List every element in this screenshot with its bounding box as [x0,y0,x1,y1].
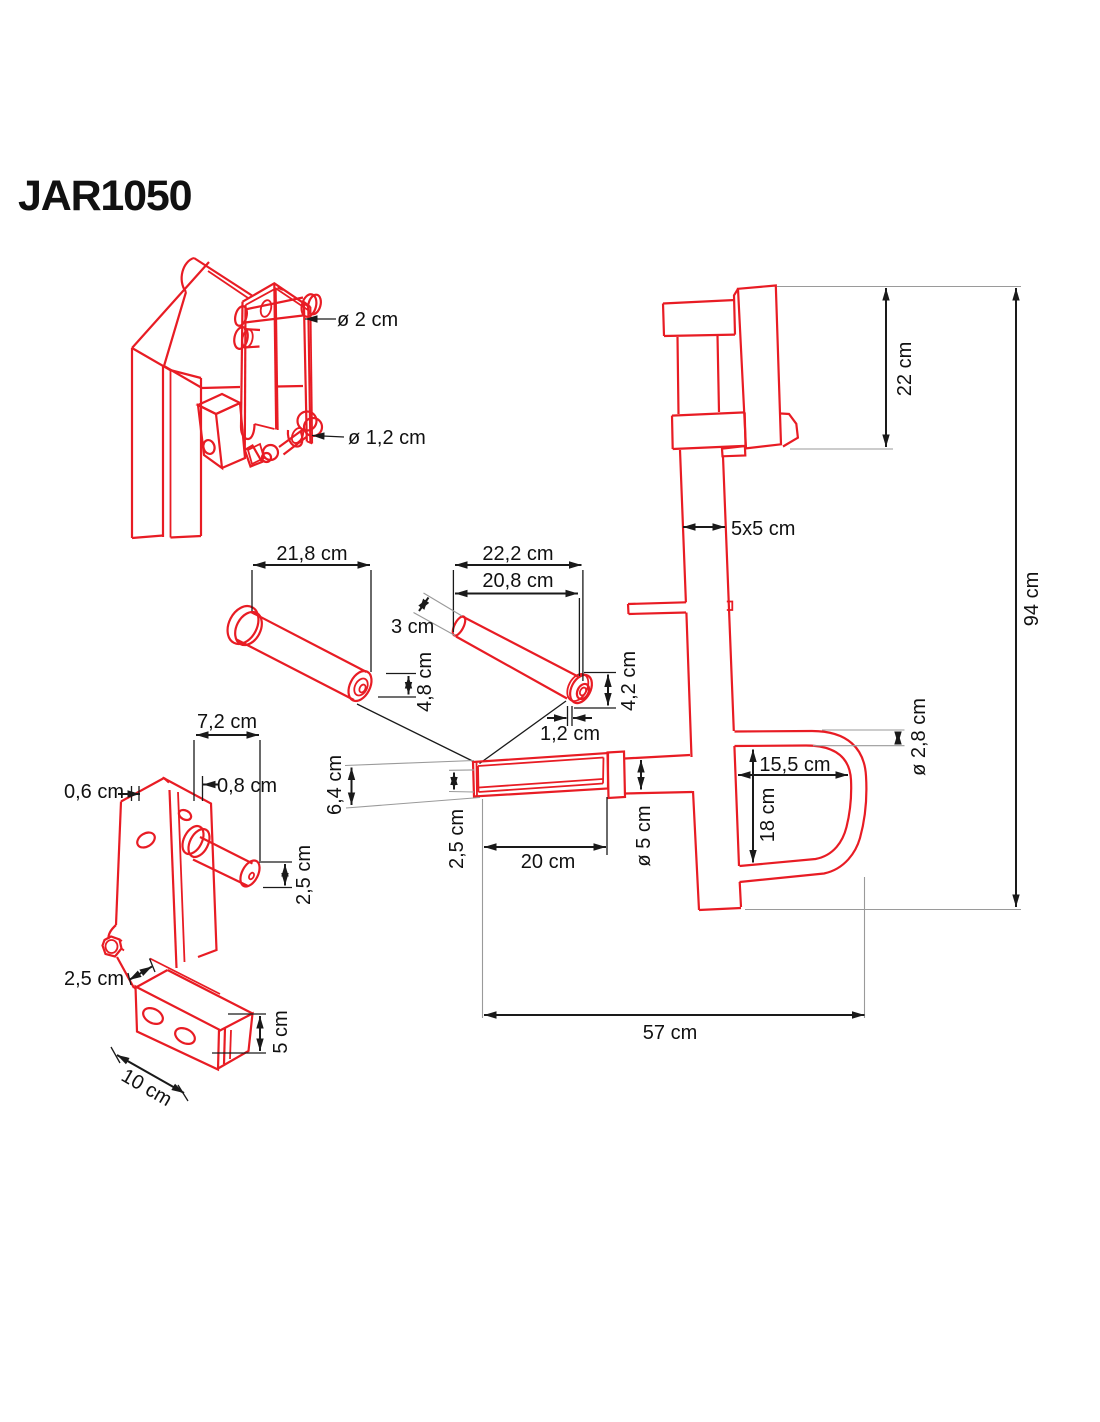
svg-text:18 cm: 18 cm [757,788,779,842]
svg-text:7,2 cm: 7,2 cm [197,711,257,733]
svg-text:21,8 cm: 21,8 cm [276,543,347,565]
svg-text:0,8 cm: 0,8 cm [217,775,277,797]
svg-text:4,8 cm: 4,8 cm [414,652,436,712]
svg-text:22,2 cm: 22,2 cm [482,543,553,565]
svg-text:6,4 cm: 6,4 cm [324,755,346,815]
svg-text:3 cm: 3 cm [391,616,434,638]
svg-text:2,5 cm: 2,5 cm [446,809,468,869]
svg-text:ø 2,8 cm: ø 2,8 cm [908,698,930,776]
svg-text:JAR1050: JAR1050 [18,172,192,220]
svg-text:57 cm: 57 cm [643,1022,697,1044]
svg-text:22 cm: 22 cm [894,342,916,396]
svg-text:5 cm: 5 cm [270,1010,292,1053]
svg-text:1,2 cm: 1,2 cm [540,723,600,745]
svg-text:94 cm: 94 cm [1021,572,1043,626]
svg-text:ø 5 cm: ø 5 cm [633,805,655,866]
svg-text:4,2 cm: 4,2 cm [618,651,640,711]
svg-text:ø 2 cm: ø 2 cm [337,309,398,331]
svg-text:2,5 cm: 2,5 cm [293,845,315,905]
svg-text:0,6 cm: 0,6 cm [64,781,124,803]
svg-text:20 cm: 20 cm [521,851,575,873]
svg-text:15,5 cm: 15,5 cm [759,754,830,776]
svg-text:20,8 cm: 20,8 cm [482,570,553,592]
svg-text:5x5 cm: 5x5 cm [731,518,795,540]
svg-text:ø 1,2 cm: ø 1,2 cm [348,427,426,449]
svg-text:2,5 cm: 2,5 cm [64,968,124,990]
